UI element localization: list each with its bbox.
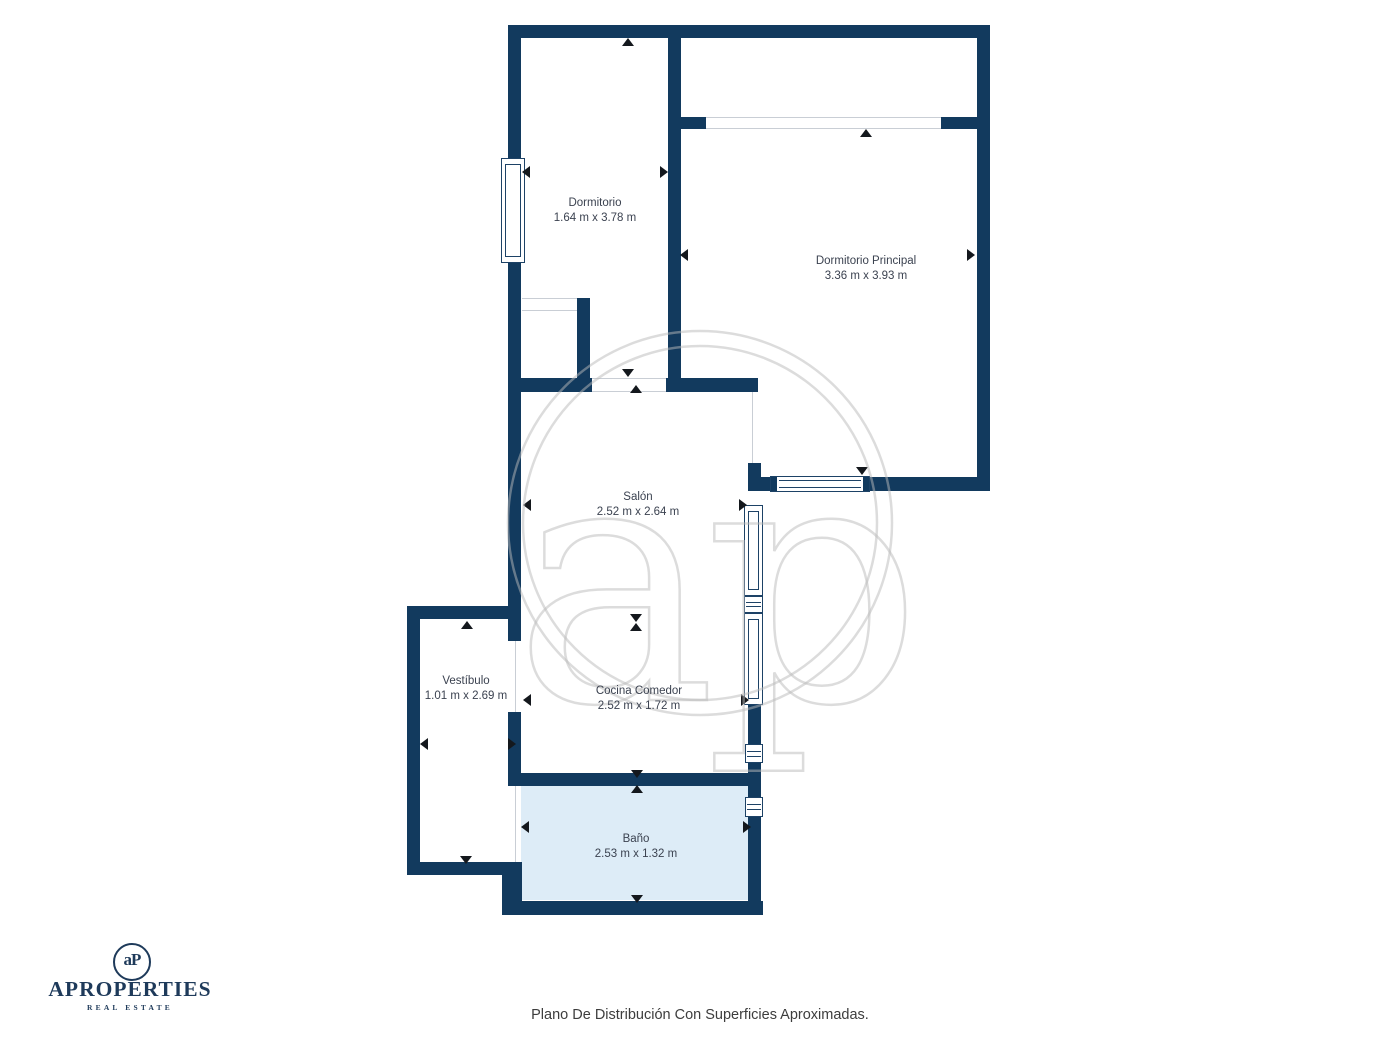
wall-segment	[508, 38, 521, 159]
direction-arrow-down	[856, 467, 868, 475]
wall-segment	[977, 38, 990, 491]
room-dimensions: 2.53 m x 1.32 m	[526, 847, 746, 862]
room-name: Baño	[526, 832, 746, 847]
opening-line	[515, 786, 516, 862]
direction-arrow-up	[860, 129, 872, 137]
direction-arrow-left	[522, 166, 530, 178]
wall-segment	[681, 117, 706, 129]
direction-arrow-left	[420, 738, 428, 750]
room-dimensions: 2.52 m x 2.64 m	[528, 505, 748, 520]
plan-caption: Plano De Distribución Con Superficies Ap…	[0, 1007, 1400, 1023]
room-label: Dormitorio1.64 m x 3.78 m	[485, 196, 705, 226]
room-name: Cocina Comedor	[529, 684, 749, 699]
window-detail	[747, 756, 761, 757]
window-detail	[747, 809, 761, 810]
wall-segment	[508, 392, 521, 641]
direction-arrow-right	[660, 166, 668, 178]
window-detail	[747, 804, 761, 805]
wall-segment	[508, 378, 592, 392]
door-opening	[522, 298, 577, 311]
watermark-letters: ap	[514, 385, 910, 781]
window	[770, 476, 870, 492]
window-detail	[748, 619, 759, 699]
direction-arrow-up	[631, 785, 643, 793]
room-label: Salón2.52 m x 2.64 m	[528, 490, 748, 520]
direction-arrow-down	[631, 770, 643, 778]
wall-segment	[509, 901, 763, 915]
wall-segment	[407, 619, 420, 875]
room-label: Baño2.53 m x 1.32 m	[526, 832, 746, 862]
room-label: Dormitorio Principal3.36 m x 3.93 m	[756, 254, 976, 284]
wall-segment	[508, 773, 748, 786]
direction-arrow-up	[630, 385, 642, 393]
direction-arrow-up	[622, 38, 634, 46]
room-label: Cocina Comedor2.52 m x 1.72 m	[529, 684, 749, 714]
window	[745, 797, 763, 817]
window	[744, 596, 763, 613]
direction-arrow-up	[461, 621, 473, 629]
wall-segment	[748, 763, 761, 797]
room-name: Dormitorio Principal	[756, 254, 976, 269]
window-detail	[746, 602, 761, 603]
wall-segment	[666, 378, 758, 392]
direction-arrow-down	[630, 614, 642, 622]
room-dimensions: 2.52 m x 1.72 m	[529, 699, 749, 714]
window-detail	[771, 477, 777, 491]
wall-segment	[870, 477, 990, 491]
room-name: Salón	[528, 490, 748, 505]
watermark-ring	[523, 346, 877, 700]
room-dimensions: 1.64 m x 3.78 m	[485, 211, 705, 226]
window-detail	[863, 477, 869, 491]
direction-arrow-right	[508, 738, 516, 750]
direction-arrow-left	[680, 249, 688, 261]
wall-segment	[407, 862, 502, 875]
aproperties-monogram-icon: aP	[113, 943, 151, 981]
window	[745, 744, 763, 763]
wall-segment	[941, 117, 977, 129]
wall-segment	[508, 25, 990, 38]
window-detail	[779, 480, 861, 488]
wall-segment	[508, 263, 521, 392]
window-detail	[748, 511, 759, 590]
floorplan-page: ap Dormitorio1.64 m x 3.78 mDormitorio P…	[0, 0, 1400, 1050]
window-detail	[747, 751, 761, 752]
window-detail	[746, 606, 761, 607]
door-opening	[706, 117, 941, 129]
direction-arrow-down	[622, 369, 634, 377]
aproperties-logo-text: APROPERTIES	[28, 977, 232, 1002]
room-dimensions: 3.36 m x 3.93 m	[756, 269, 976, 284]
direction-arrow-down	[631, 895, 643, 903]
direction-arrow-up	[630, 623, 642, 631]
wall-segment	[748, 705, 761, 744]
wall-segment	[748, 477, 770, 491]
door-opening	[592, 378, 666, 392]
room-name: Dormitorio	[485, 196, 705, 211]
door-opening	[745, 392, 758, 463]
opening-line	[752, 392, 753, 463]
door-opening	[508, 786, 521, 862]
wall-segment	[407, 606, 521, 619]
direction-arrow-down	[460, 856, 472, 864]
